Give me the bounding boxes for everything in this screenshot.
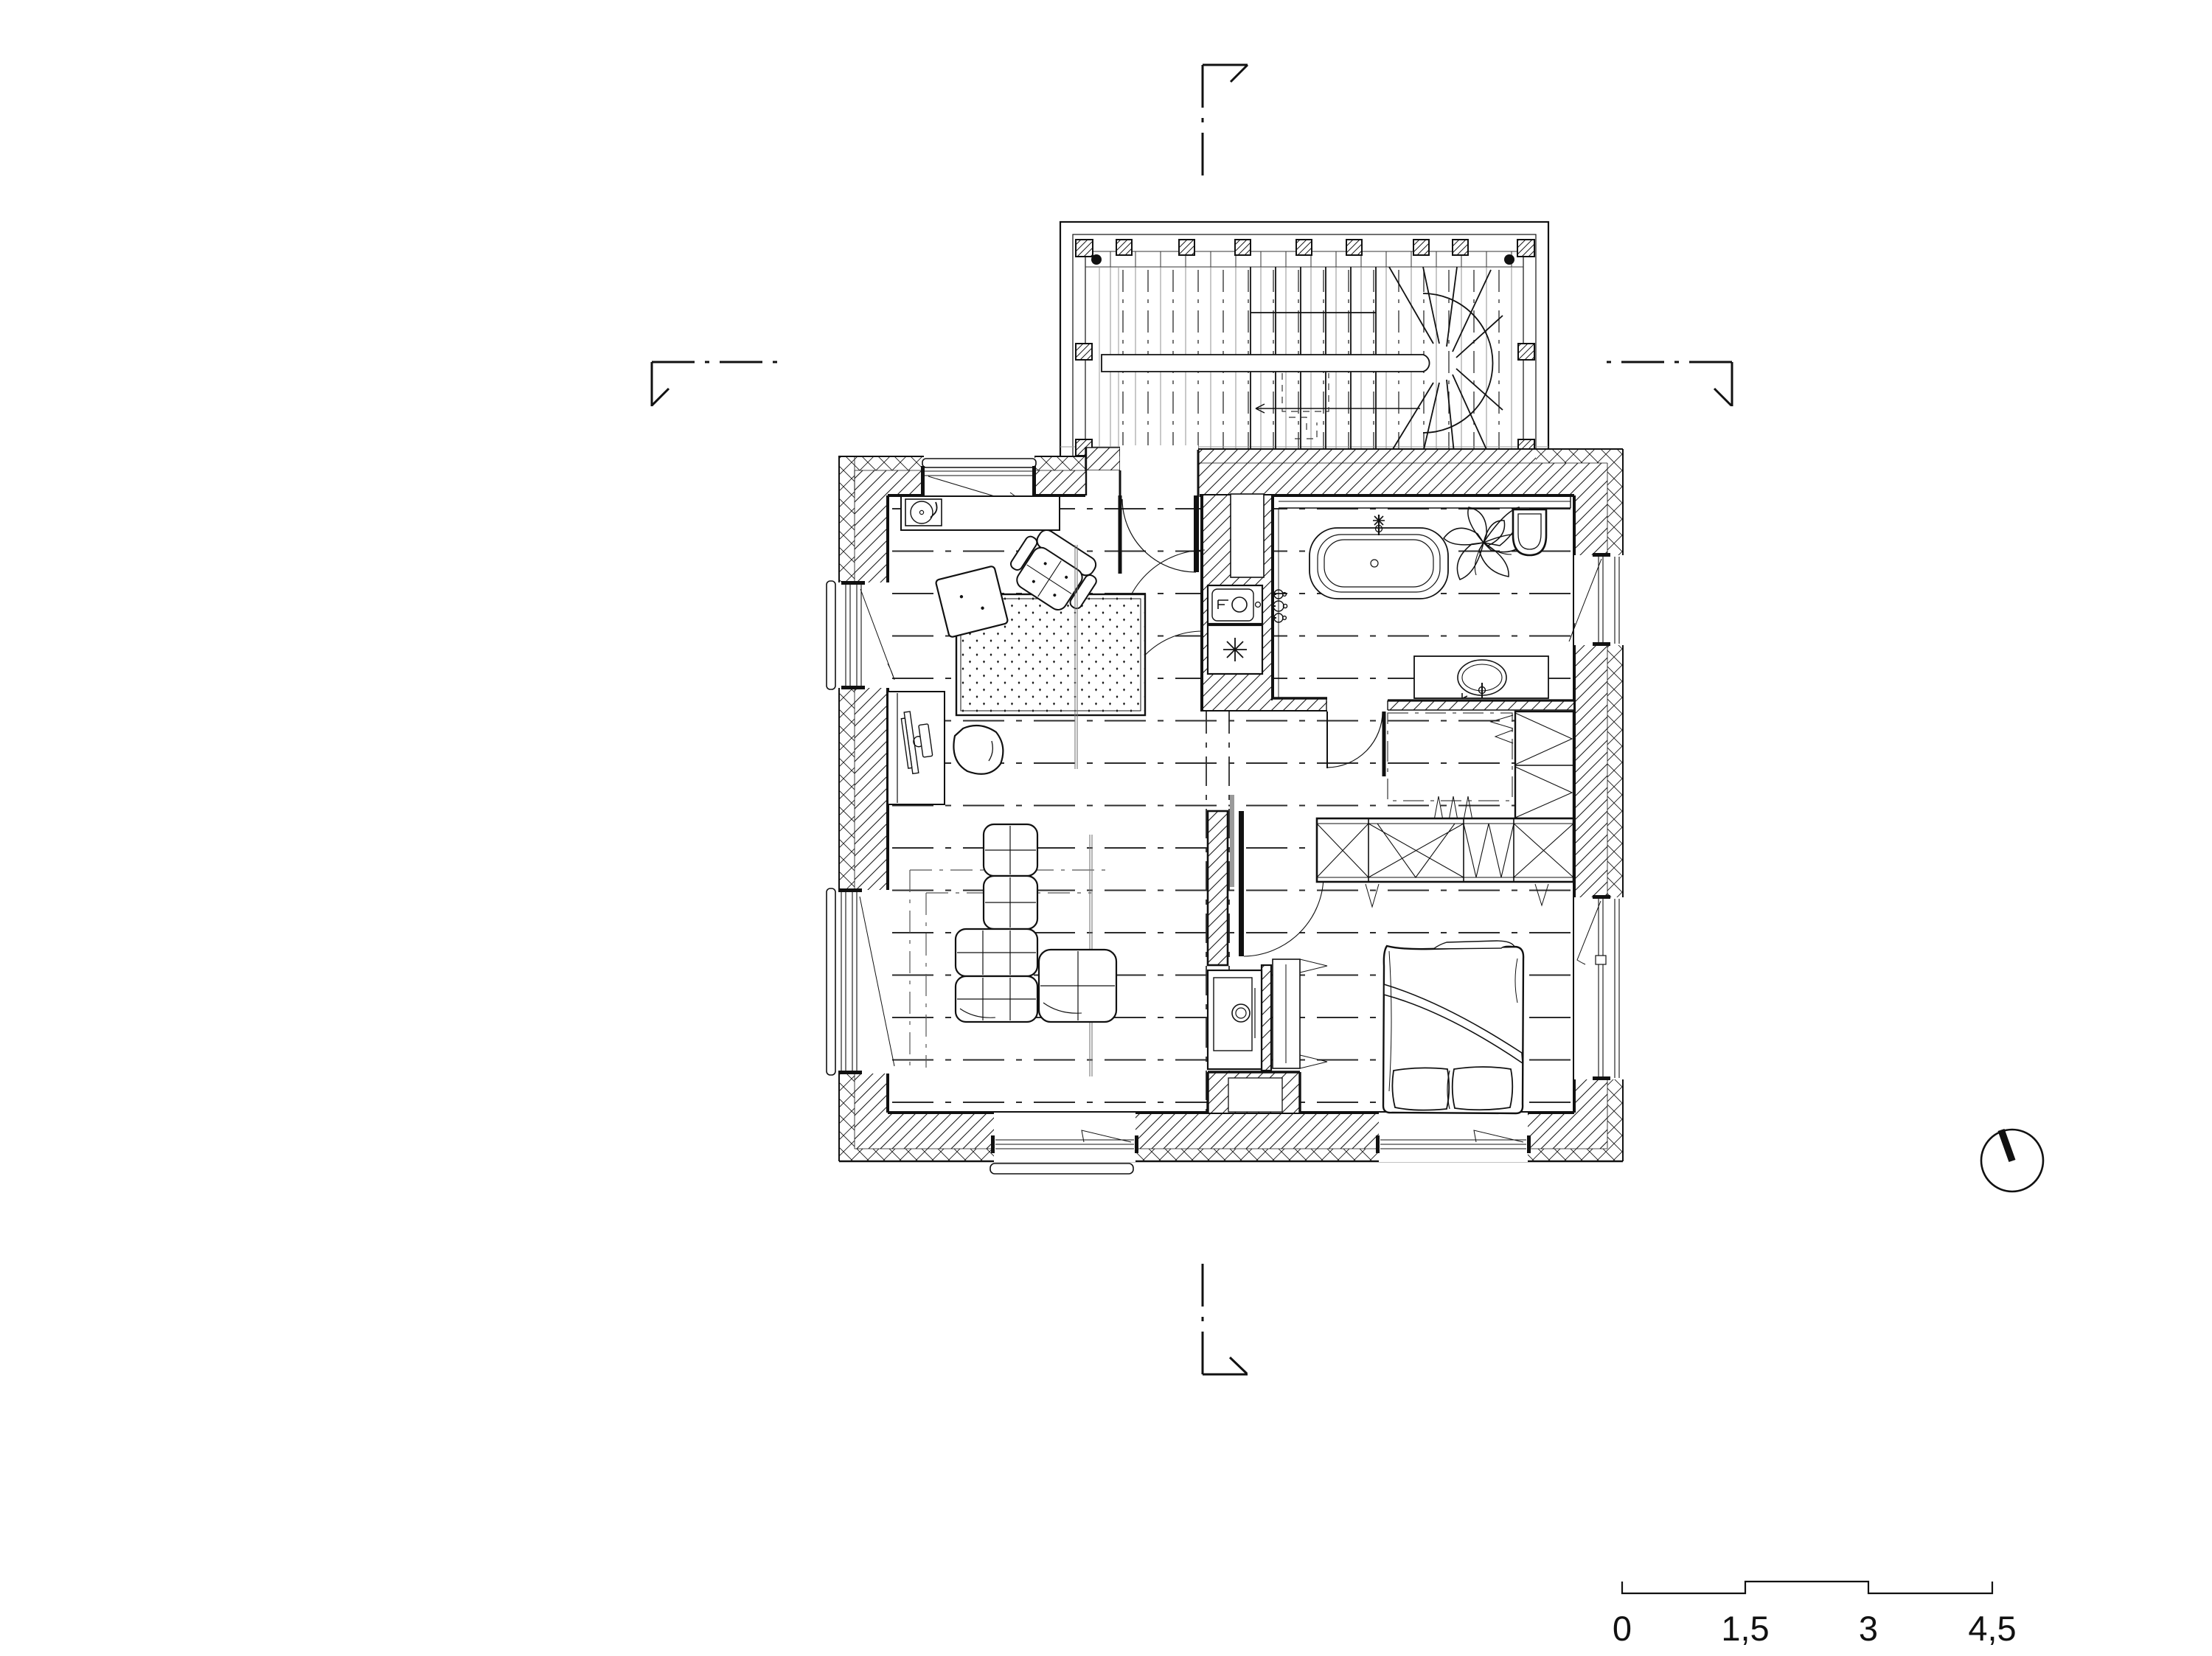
svg-text:1,5: 1,5: [1721, 1609, 1769, 1648]
svg-text:0: 0: [1613, 1609, 1632, 1648]
svg-text:4,5: 4,5: [1968, 1609, 2016, 1648]
svg-text:3: 3: [1859, 1609, 1878, 1648]
